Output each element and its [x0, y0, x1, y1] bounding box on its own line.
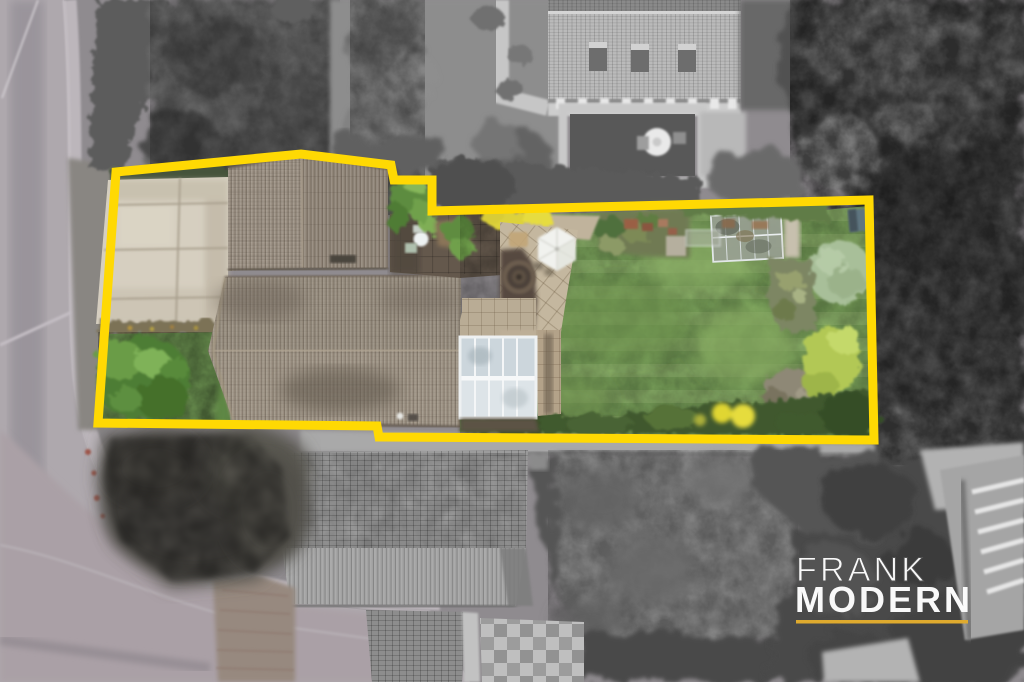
svg-text:MODERN: MODERN	[795, 579, 973, 620]
